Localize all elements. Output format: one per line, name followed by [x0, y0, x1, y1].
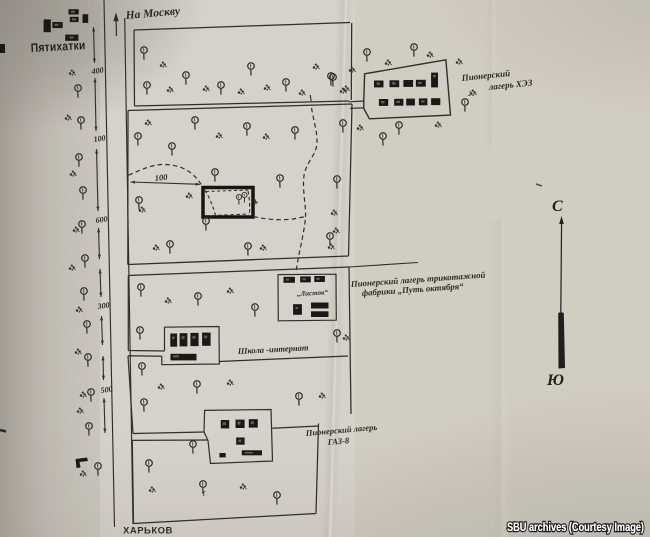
svg-text:SBU archives (Courtesy Image): SBU archives (Courtesy Image): [507, 521, 644, 534]
